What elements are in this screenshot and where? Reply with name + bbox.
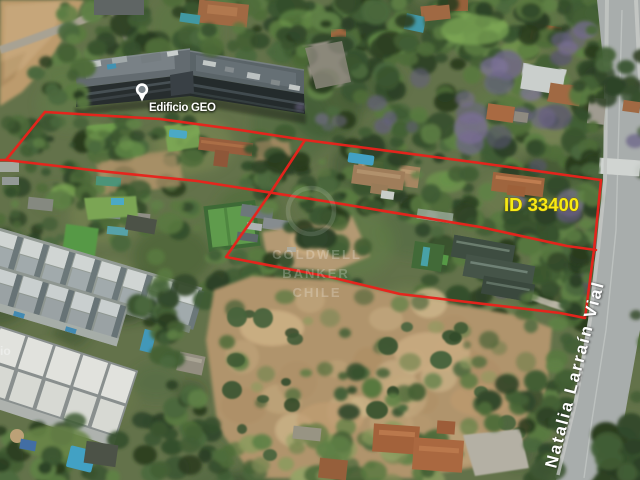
svg-text:Edificio GEO: Edificio GEO — [149, 102, 216, 114]
svg-text:CHILE: CHILE — [293, 285, 342, 300]
svg-text:COLDWELL: COLDWELL — [272, 247, 362, 262]
svg-text:ID 33400: ID 33400 — [504, 194, 579, 215]
svg-text:BANKER: BANKER — [282, 266, 350, 281]
